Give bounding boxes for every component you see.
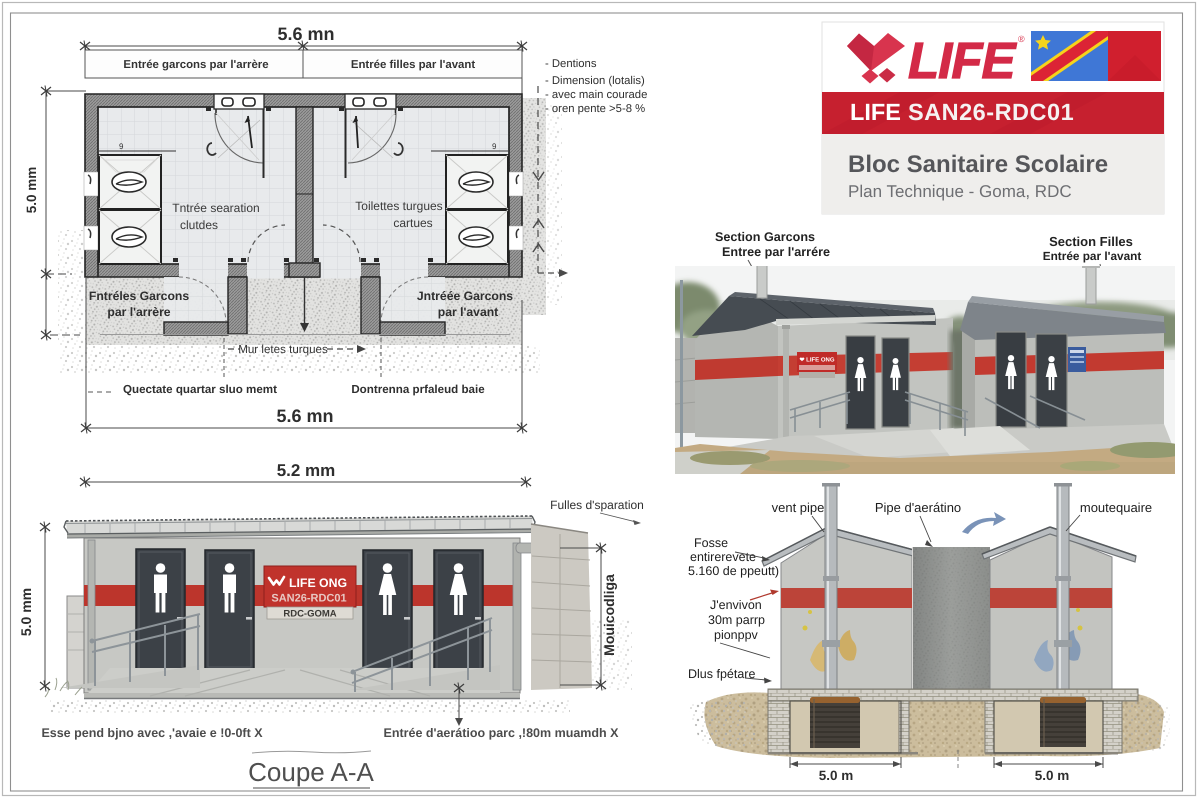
svg-text:Bloc Sanitaire Scolaire: Bloc Sanitaire Scolaire [848, 151, 1108, 178]
svg-text:par l'arrère: par l'arrère [107, 305, 170, 319]
svg-text:5.2 mm: 5.2 mm [277, 461, 336, 480]
svg-text:Entrée d'aerátioo parc ,!80m m: Entrée d'aerátioo parc ,!80m muamdh X [384, 726, 620, 740]
svg-text:Section Filles: Section Filles [1049, 234, 1133, 249]
svg-text:vent pipe: vent pipe [772, 500, 825, 515]
svg-text:5.0 m: 5.0 m [1035, 768, 1070, 783]
svg-text:- Dimension (lotalis): - Dimension (lotalis) [545, 75, 645, 87]
svg-text:Fntréles Garcons: Fntréles Garcons [89, 289, 189, 303]
svg-text:❤ LIFE ONG: ❤ LIFE ONG [799, 357, 834, 364]
svg-text:LIFE: LIFE [908, 32, 1017, 89]
svg-text:30m parrp: 30m parrp [708, 613, 765, 627]
svg-text:Jntréée Garcons: Jntréée Garcons [417, 289, 513, 303]
svg-text:5.0 m: 5.0 m [819, 768, 854, 783]
svg-text:Pipe d'aerátino: Pipe d'aerátino [875, 500, 961, 515]
svg-text:5.0 mm: 5.0 mm [24, 167, 39, 214]
svg-text:clutdes: clutdes [180, 218, 218, 232]
svg-text:5.160 de ppeutt): 5.160 de ppeutt) [688, 564, 779, 578]
svg-text:SAN26-RDC01: SAN26-RDC01 [908, 99, 1074, 125]
svg-text:5.0 mm: 5.0 mm [18, 588, 34, 636]
svg-text:9: 9 [492, 142, 497, 151]
svg-text:pionppv: pionppv [714, 628, 759, 642]
svg-text:SAN26-RDC01: SAN26-RDC01 [271, 593, 346, 605]
svg-text:Fulles d'sparation: Fulles d'sparation [550, 498, 644, 512]
svg-text:Esse pend bjno avec ,'avaie e: Esse pend bjno avec ,'avaie e !0-0ft X [41, 726, 263, 740]
svg-text:Plan Technique - Goma, RDC: Plan Technique - Goma, RDC [848, 182, 1072, 201]
svg-text:5.6 mn: 5.6 mn [276, 406, 333, 426]
svg-text:J'envivon: J'envivon [710, 598, 762, 612]
svg-text:Toilettes turgues: Toilettes turgues [355, 199, 442, 213]
svg-text:- oren pente >5-8 %: - oren pente >5-8 % [545, 103, 645, 115]
svg-text:Mouicodliga: Mouicodliga [601, 574, 617, 656]
svg-text:LIFE ONG: LIFE ONG [289, 576, 347, 590]
svg-text:Entrée filles par l'avant: Entrée filles par l'avant [351, 59, 475, 71]
svg-text:Coupe A-A: Coupe A-A [248, 757, 374, 787]
svg-text:moutequaire: moutequaire [1080, 500, 1152, 515]
svg-text:®: ® [1018, 34, 1025, 44]
svg-text:Fosse: Fosse [694, 536, 728, 550]
svg-text:Dontrenna prfaleud baie: Dontrenna prfaleud baie [351, 383, 485, 396]
svg-text:Entrée par l'avant: Entrée par l'avant [1043, 249, 1142, 263]
svg-text:Tntrée searation: Tntrée searation [172, 201, 259, 215]
svg-text:par l'avant: par l'avant [438, 305, 498, 319]
svg-text:- Dentions: - Dentions [545, 58, 597, 70]
svg-text:Mur letes turques: Mur letes turques [238, 343, 328, 356]
svg-text:Entree par l'arrére: Entree par l'arrére [722, 245, 830, 259]
svg-text:5.6 mn: 5.6 mn [277, 24, 334, 44]
svg-text:entirerevete: entirerevete [690, 550, 756, 564]
svg-text:9: 9 [119, 142, 124, 151]
svg-text:RDC-GOMA: RDC-GOMA [283, 609, 336, 620]
svg-text:- avec main courade: - avec main courade [545, 89, 647, 101]
svg-text:Section Garcons: Section Garcons [715, 230, 815, 244]
svg-text:Dlus fpétare: Dlus fpétare [688, 667, 755, 681]
svg-text:cartues: cartues [393, 216, 432, 230]
svg-text:Entrée garcons par l'arrère: Entrée garcons par l'arrère [123, 59, 268, 71]
svg-text:LIFE: LIFE [850, 99, 901, 125]
svg-text:Quectate quartar sluo memt: Quectate quartar sluo memt [123, 383, 277, 396]
